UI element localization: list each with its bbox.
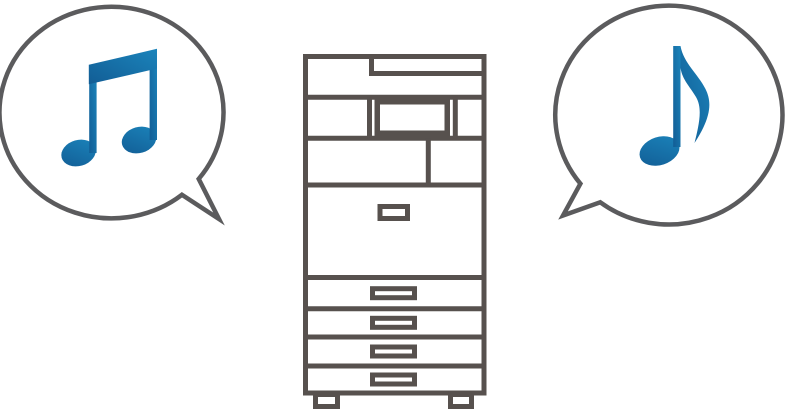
printer-foot-left [316,395,338,407]
printer-sounds-illustration [0,0,788,410]
front-door-handle [380,207,408,219]
multifunction-printer-icon [306,57,485,407]
paper-tray-4-handle [373,375,415,384]
illustration-canvas [0,0,788,410]
note-stem [673,46,680,147]
paper-tray-1-handle [373,289,415,298]
speech-bubble-right [555,6,782,225]
control-panel-display [377,102,447,134]
paper-tray-3-handle [373,347,415,356]
speech-bubble-right-outline [555,6,782,225]
speech-bubble-left-outline [0,7,223,219]
speech-bubble-left [0,7,223,219]
paper-tray-2-handle [373,318,415,327]
printer-foot-right [451,395,472,407]
